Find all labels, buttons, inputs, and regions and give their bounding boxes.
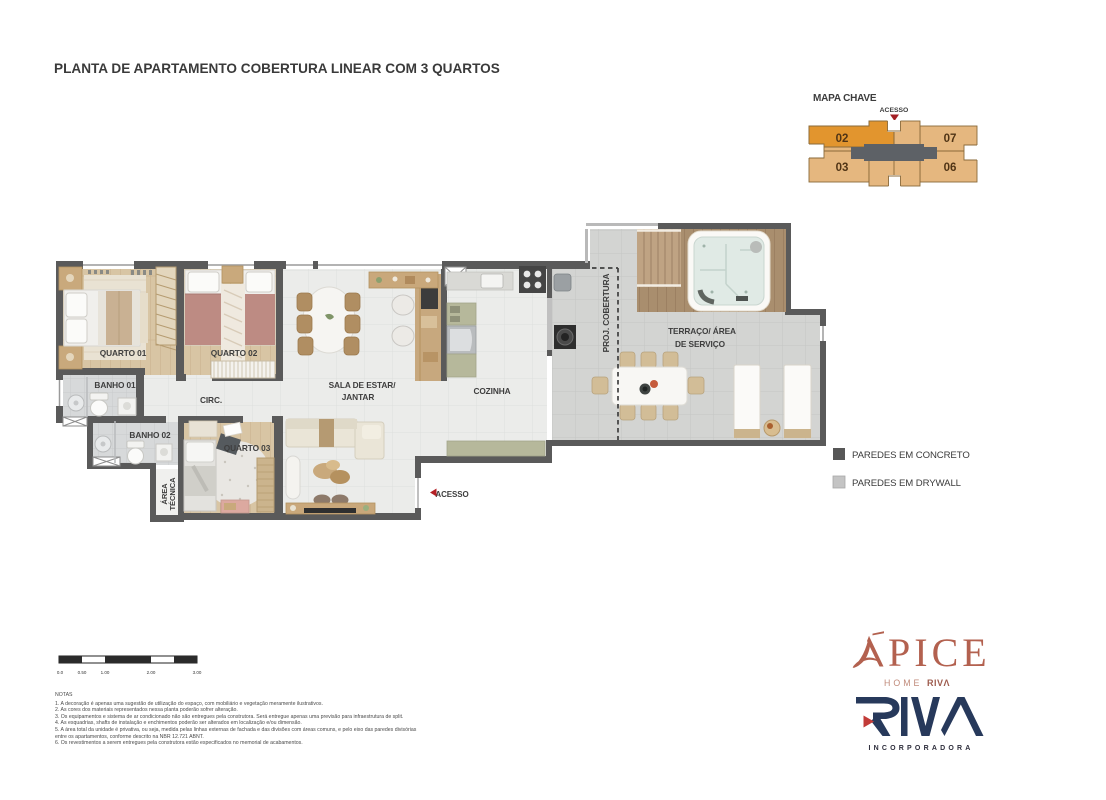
svg-text:COZINHA: COZINHA bbox=[473, 386, 510, 396]
svg-text:JANTAR: JANTAR bbox=[342, 392, 375, 402]
svg-text:PROJ. COBERTURA: PROJ. COBERTURA bbox=[601, 274, 611, 353]
svg-text:SALA DE ESTAR/: SALA DE ESTAR/ bbox=[329, 380, 397, 390]
svg-text:ACESSO: ACESSO bbox=[435, 490, 468, 499]
svg-text:03: 03 bbox=[836, 162, 849, 174]
svg-text:02: 02 bbox=[836, 133, 849, 145]
svg-text:2.00: 2.00 bbox=[147, 670, 156, 675]
svg-text:0.0: 0.0 bbox=[57, 670, 64, 675]
svg-text:QUARTO 02: QUARTO 02 bbox=[211, 348, 258, 358]
svg-text:07: 07 bbox=[944, 133, 957, 145]
svg-text:3.00: 3.00 bbox=[193, 670, 202, 675]
svg-text:PICE: PICE bbox=[888, 630, 991, 675]
svg-text:CIRC.: CIRC. bbox=[200, 395, 222, 405]
svg-text:0.50: 0.50 bbox=[78, 670, 87, 675]
svg-text:BANHO 01: BANHO 01 bbox=[94, 380, 136, 390]
svg-text:QUARTO 03: QUARTO 03 bbox=[224, 443, 271, 453]
svg-text:INCORPORADORA: INCORPORADORA bbox=[869, 745, 974, 752]
svg-text:BANHO 02: BANHO 02 bbox=[129, 430, 171, 440]
svg-text:DE SERVIÇO: DE SERVIÇO bbox=[675, 339, 726, 349]
svg-text:HOME: HOME bbox=[884, 678, 922, 688]
svg-text:MAPA CHAVE: MAPA CHAVE bbox=[813, 93, 877, 104]
svg-text:RIVΛ: RIVΛ bbox=[927, 678, 950, 688]
svg-text:PAREDES EM DRYWALL: PAREDES EM DRYWALL bbox=[852, 478, 962, 489]
svg-text:PAREDES EM CONCRETO: PAREDES EM CONCRETO bbox=[852, 450, 970, 461]
svg-text:ACESSO: ACESSO bbox=[880, 107, 909, 114]
svg-text:1.00: 1.00 bbox=[101, 670, 110, 675]
svg-text:06: 06 bbox=[944, 162, 957, 174]
svg-text:QUARTO 01: QUARTO 01 bbox=[100, 348, 147, 358]
svg-text:TERRAÇO/ ÁREA: TERRAÇO/ ÁREA bbox=[668, 326, 736, 336]
svg-text:TÉCNICA: TÉCNICA bbox=[168, 477, 177, 511]
